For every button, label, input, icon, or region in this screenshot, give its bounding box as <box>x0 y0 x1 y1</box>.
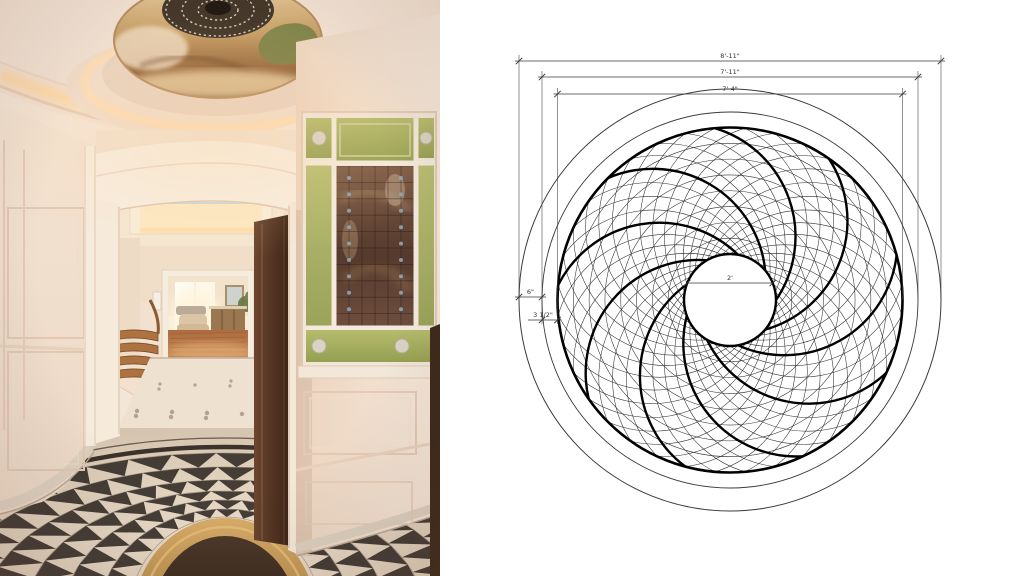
rotunda-photo <box>0 0 440 576</box>
dim-label-outer-diameter: 8'-11" <box>720 52 740 60</box>
floor-medallion-plan: 8'-11"7'-11"7'-4"6"3 1/2"2' <box>440 0 1024 576</box>
center-circle <box>684 254 776 346</box>
dim-label-center-diameter: 2' <box>727 274 733 282</box>
photo-panel <box>0 0 440 576</box>
screenshot-root: 8'-11"7'-11"7'-4"6"3 1/2"2' <box>0 0 1024 576</box>
plan-panel: 8'-11"7'-11"7'-4"6"3 1/2"2' <box>440 0 1024 576</box>
dim-label-inner-band: 3 1/2" <box>533 311 553 319</box>
dim-label-middle-diameter: 7'-11" <box>720 68 740 76</box>
dim-label-outer-band: 6" <box>527 288 534 296</box>
dim-label-field-diameter: 7'-4" <box>722 85 737 93</box>
vignette <box>0 0 440 576</box>
